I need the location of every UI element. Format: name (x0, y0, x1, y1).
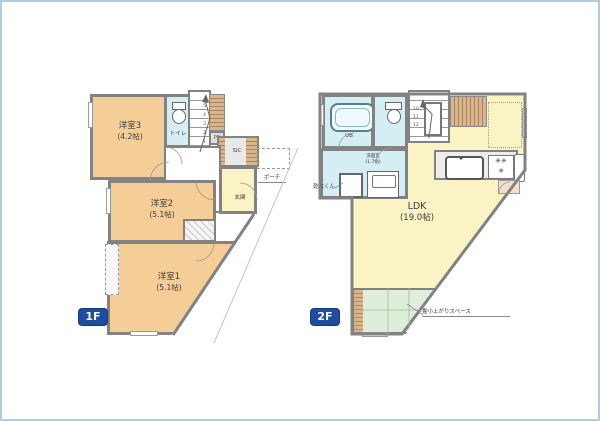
window (88, 102, 93, 128)
wood-step (354, 290, 363, 332)
room-yoshitsu1: 洋室1 (5.1帖) (107, 241, 238, 335)
room-senmen: 洗面室 (1.7帖) (320, 148, 408, 199)
ub-label: UB (339, 133, 359, 140)
window (130, 331, 158, 336)
closet-between-rooms (183, 219, 216, 242)
genkan-label: 玄関 (226, 195, 254, 202)
room-toilet-2f (372, 94, 408, 149)
genkan-entrance: 玄関 (219, 166, 257, 214)
closet-folding-doors (105, 244, 119, 295)
stairwell (424, 102, 442, 136)
window (319, 104, 324, 126)
floor-badge-1f: 1F (78, 308, 108, 326)
sink-icon (372, 175, 396, 188)
floorplan-canvas: 洋室3 (4.2帖) トイレ 5 4 3 2 1 PS SIC ホール 玄関 ポ… (0, 0, 600, 421)
room-unit-bath: UB (322, 94, 374, 149)
walls-and-arcs-overlay (2, 2, 600, 421)
ceiling-dotted-outline (488, 102, 522, 148)
stove-icon: ✳✳ ✳ (488, 155, 514, 179)
kitchen-sink-icon (445, 156, 484, 180)
refrigerator-space (514, 154, 525, 182)
room-label: 洋室2 (133, 199, 191, 210)
ldk-label: LDK (386, 201, 448, 213)
window (522, 108, 527, 138)
senmen-size: (1.7帖) (351, 160, 395, 166)
floor-badge-2f: 2F (310, 308, 340, 326)
dryer-label: 乾太くん (301, 184, 335, 191)
window (106, 188, 111, 214)
ldk-size: (19.0帖) (386, 213, 448, 224)
window (362, 332, 388, 337)
room-label: トイレ (167, 131, 189, 138)
room-size: (4.2帖) (101, 132, 159, 141)
gas-dryer-box (339, 173, 363, 198)
room-yoshitsu3: 洋室3 (4.2帖) (90, 94, 168, 180)
porch-label: ポーチ (258, 175, 286, 183)
stairs-2f: 10 11 12 (408, 90, 450, 143)
wood-deck-hatch (450, 96, 487, 127)
stair-numbers: 10 11 12 (413, 106, 419, 130)
porch-roof-outline (257, 148, 290, 169)
room-label: 洋室1 (138, 272, 200, 283)
toilet-icon (172, 109, 186, 124)
toilet-icon (387, 109, 401, 124)
shoe-closet-sic: SIC (217, 136, 259, 167)
tatami-label: 畳小上がりスペース (422, 309, 510, 317)
sic-label: SIC (226, 148, 248, 155)
bathtub-icon (330, 103, 375, 132)
stair-numbers: 5 4 3 2 1 (203, 102, 206, 147)
vanity-counter (367, 171, 399, 198)
corner-closet (498, 180, 520, 194)
kitchen-counter: ✳✳ ✳ (434, 150, 518, 180)
room-size: (5.1帖) (138, 283, 200, 292)
room-size: (5.1帖) (133, 210, 191, 219)
room-label: 洋室3 (101, 121, 159, 132)
closet-hatch-1f (209, 94, 225, 131)
room-toilet-1f: トイレ (164, 94, 191, 148)
